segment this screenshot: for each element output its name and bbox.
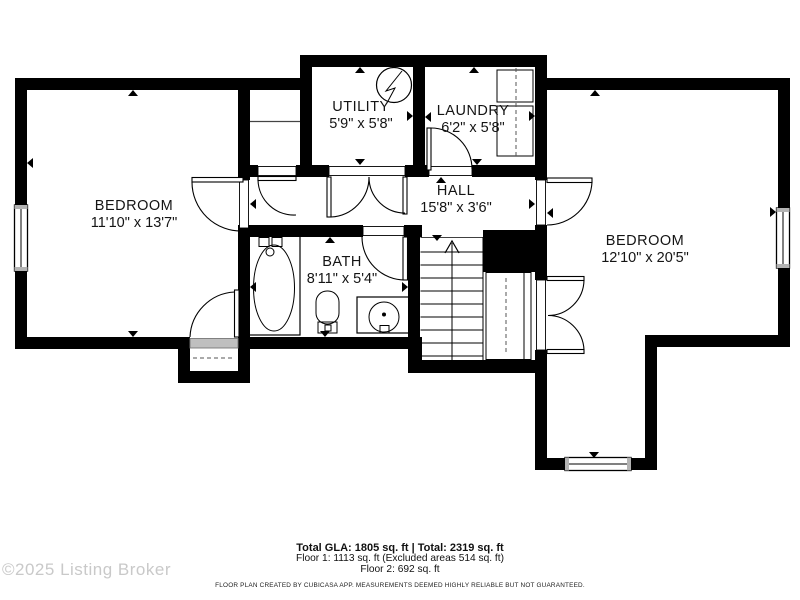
room-dimensions: 12'10" x 20'5" — [601, 250, 689, 267]
room-label-bath: BATH 8'11" x 5'4" — [307, 254, 377, 288]
room-label-utility: UTILITY 5'9" x 5'8" — [329, 99, 392, 133]
water-heater-icon — [377, 68, 412, 103]
sink-vanity-icon — [357, 297, 410, 333]
closet-shelf-icon — [486, 273, 531, 360]
room-label-laundry: LAUNDRY 6'2" x 5'8" — [437, 103, 510, 137]
window-icon — [565, 458, 631, 471]
double-door-swing-icon — [547, 277, 584, 354]
floor-plan-drawing — [0, 0, 800, 600]
room-dimensions: 8'11" x 5'4" — [307, 271, 377, 288]
room-label-bedroom-left: BEDROOM 11'10" x 13'7" — [91, 198, 178, 232]
room-name: BEDROOM — [601, 233, 689, 250]
closet-threshold — [190, 339, 238, 349]
washer-icon — [497, 70, 533, 102]
double-door-swing-icon — [327, 177, 407, 217]
room-dimensions: 15'8" x 3'6" — [420, 200, 491, 217]
room-name: UTILITY — [329, 99, 392, 116]
room-dimensions: 11'10" x 13'7" — [91, 215, 178, 232]
window-icon — [777, 208, 790, 268]
disclaimer-text: FLOOR PLAN CREATED BY CUBICASA APP. MEAS… — [0, 582, 800, 589]
room-label-hall: HALL 15'8" x 3'6" — [420, 183, 491, 217]
chimney-block — [483, 230, 547, 272]
watermark: ©2025 Listing Broker — [2, 560, 171, 580]
stairs-up-icon — [421, 237, 484, 360]
room-name: BATH — [307, 254, 377, 271]
room-name: BEDROOM — [91, 198, 178, 215]
room-dimensions: 5'9" x 5'8" — [329, 116, 392, 133]
window-icon — [15, 205, 28, 271]
door-swing-icon — [192, 178, 243, 232]
floor-plan-page: BEDROOM 11'10" x 13'7" UTILITY 5'9" x 5'… — [0, 0, 800, 600]
toilet-icon — [316, 291, 339, 333]
room-name: LAUNDRY — [437, 103, 510, 120]
room-label-bedroom-right: BEDROOM 12'10" x 20'5" — [601, 233, 689, 267]
room-dimensions: 6'2" x 5'8" — [437, 120, 510, 137]
door-swing-icon — [547, 178, 592, 225]
door-swing-icon — [258, 177, 296, 216]
room-name: HALL — [420, 183, 491, 200]
door-swing-icon — [190, 290, 239, 337]
